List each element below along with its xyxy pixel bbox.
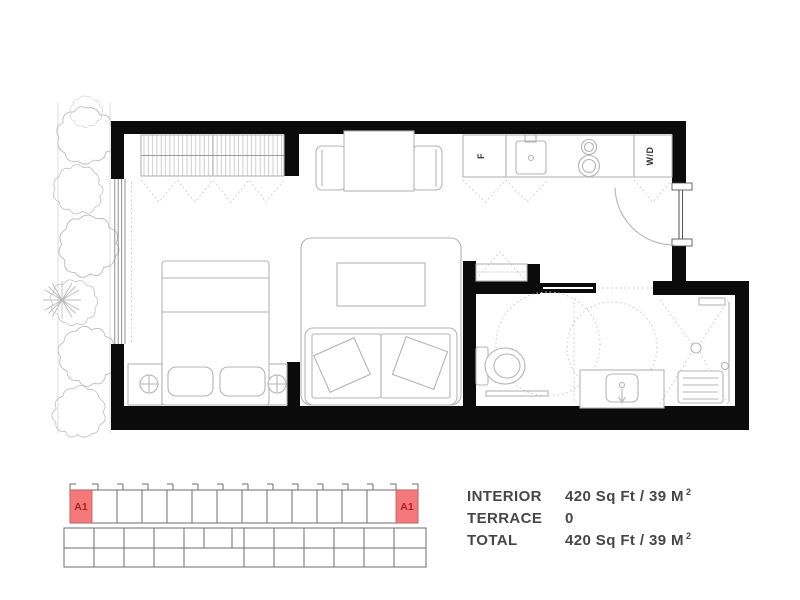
stats-label-total: TOTAL bbox=[467, 530, 565, 552]
wall-bed-living-stub bbox=[287, 362, 300, 408]
closet bbox=[141, 135, 284, 202]
shower-shelf bbox=[699, 298, 725, 305]
fridge-label: F bbox=[476, 153, 486, 159]
key-plan-unit-label-right: A1 bbox=[400, 501, 414, 513]
stats-value-sup: 2 bbox=[686, 531, 691, 541]
coffee-table bbox=[337, 263, 425, 306]
entry-door-leaf bbox=[679, 190, 683, 239]
stats-value-total: 420 Sq Ft / 39 M2 bbox=[565, 532, 691, 549]
dining-table bbox=[344, 131, 414, 191]
kitchen: F W/D bbox=[463, 135, 672, 202]
entry-door-swing bbox=[615, 188, 674, 245]
wall-niche-stub bbox=[527, 264, 540, 294]
lamp-icon bbox=[140, 375, 158, 393]
bed-pillow-right bbox=[220, 367, 265, 396]
shower-bench bbox=[678, 371, 723, 403]
kitchen-sink bbox=[516, 135, 546, 174]
stats-row-total: TOTAL420 Sq Ft / 39 M2 bbox=[467, 525, 691, 547]
key-plan-core-notch bbox=[204, 528, 232, 548]
entry-door bbox=[615, 183, 692, 246]
key-plan: A1 A1 bbox=[64, 484, 426, 567]
wall-bottom bbox=[111, 406, 749, 430]
sofa bbox=[305, 328, 457, 405]
wall-shower-right bbox=[735, 281, 749, 430]
closet-bifold-doors bbox=[141, 180, 284, 202]
towel-bar bbox=[486, 391, 548, 396]
floorplan-page: F W/D bbox=[0, 0, 800, 600]
niche-door-swing bbox=[476, 252, 524, 279]
key-plan-balcony-ticks bbox=[70, 484, 418, 490]
wall-closet-stub bbox=[284, 121, 299, 176]
key-plan-top-row bbox=[70, 490, 418, 523]
cooktop bbox=[579, 140, 600, 177]
window-left bbox=[115, 179, 132, 344]
stats-value-text: 420 Sq Ft / 39 M bbox=[565, 532, 684, 549]
shower-door-handle bbox=[722, 363, 729, 370]
stats-row-interior: INTERIOR420 Sq Ft / 39 M2 bbox=[467, 481, 691, 503]
plant-starburst-icon bbox=[43, 281, 81, 319]
bed-pillow-left bbox=[168, 367, 213, 396]
area-stats-table: INTERIOR420 Sq Ft / 39 M2 TERRACE0 TOTAL… bbox=[467, 481, 691, 547]
stats-row-terrace: TERRACE0 bbox=[467, 503, 691, 525]
wall-bath-top bbox=[653, 281, 749, 295]
key-plan-unit-label-left: A1 bbox=[74, 501, 88, 513]
bedroom-area bbox=[128, 261, 287, 405]
pocket-door bbox=[540, 283, 653, 293]
vanity-sink bbox=[580, 370, 664, 408]
washer-dryer-label: W/D bbox=[645, 147, 655, 166]
dining-chair-left bbox=[316, 146, 346, 190]
cabinet-door-swings bbox=[463, 180, 672, 202]
stats-value-interior: 420 Sq Ft / 39 M2 bbox=[565, 488, 691, 505]
shower bbox=[660, 298, 729, 404]
wall-right-upper bbox=[672, 121, 686, 183]
linen-niche bbox=[476, 264, 527, 281]
lamp-icon bbox=[268, 375, 286, 393]
dining-set bbox=[316, 131, 442, 191]
stats-value-sup: 2 bbox=[686, 487, 691, 497]
wall-right-stub bbox=[672, 246, 686, 283]
toilet bbox=[476, 347, 525, 385]
stats-value-text: 420 Sq Ft / 39 M bbox=[565, 488, 684, 505]
bathroom bbox=[476, 252, 664, 408]
living-area bbox=[301, 238, 461, 405]
dining-chair-right bbox=[412, 146, 442, 190]
shower-drain bbox=[691, 343, 701, 353]
wall-left-upper bbox=[111, 121, 124, 179]
